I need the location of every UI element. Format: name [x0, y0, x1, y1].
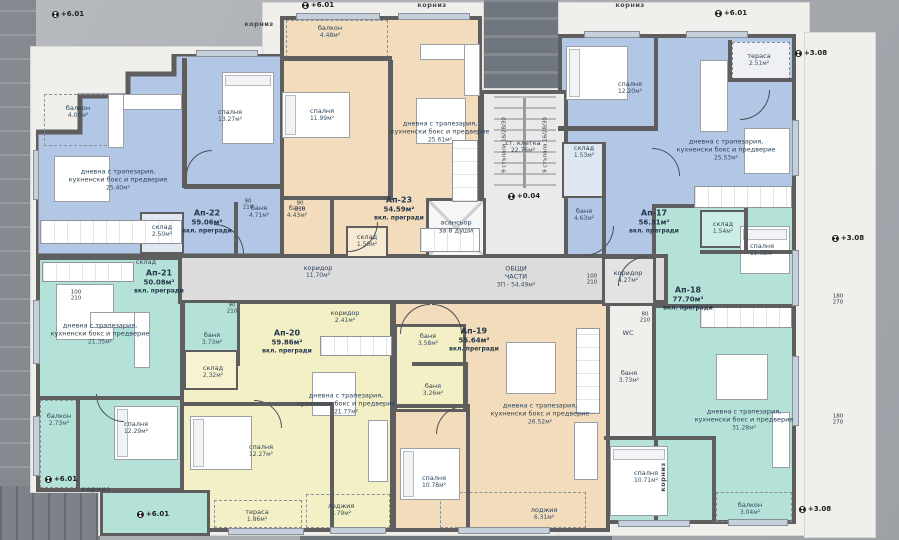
- stair-note: 9 стъпала 16/28/30: [502, 117, 509, 173]
- dining-table: [506, 342, 556, 394]
- elevation-value: +6.01: [54, 475, 77, 483]
- dining-table: [716, 354, 768, 400]
- elevation-marker: +6.01: [137, 510, 169, 518]
- wall: [558, 126, 658, 131]
- wall: [412, 362, 468, 366]
- door-dimension: 180270: [833, 294, 844, 307]
- door-dimension: 100210: [71, 290, 82, 303]
- wall: [464, 362, 468, 406]
- window: [196, 50, 258, 57]
- wall: [282, 56, 392, 61]
- window: [330, 527, 386, 534]
- window: [686, 31, 748, 38]
- dim-height: 210: [71, 296, 82, 302]
- cornice-label: корниз: [244, 20, 273, 28]
- wall: [744, 208, 748, 252]
- door-dimension: 90210: [295, 201, 306, 214]
- room-terrace-ap20: [214, 500, 302, 528]
- floor-plan-canvas: Ап-2259.06м²вкл. преградиАп-2354.59м²вкл…: [0, 0, 899, 540]
- window: [792, 250, 799, 306]
- door-dimension: 90210: [243, 199, 254, 212]
- dining-table: [744, 128, 790, 174]
- elevation-value: +6.01: [311, 1, 334, 9]
- dim-height: 210: [587, 280, 598, 286]
- wall: [728, 40, 732, 82]
- window: [296, 13, 380, 20]
- wall: [330, 200, 334, 256]
- stair-note: 9 стъпала 16/28/30: [543, 117, 550, 173]
- kitchen-counter: [694, 186, 792, 208]
- cornice-label: корниз: [615, 1, 644, 9]
- room-loggia-ap20: [306, 494, 390, 528]
- wall: [652, 304, 794, 308]
- wall: [330, 402, 334, 532]
- elevation-marker: +6.01: [52, 10, 84, 18]
- window: [398, 13, 470, 20]
- wall: [182, 58, 187, 188]
- room-loggia-ap19: [440, 492, 586, 528]
- bed: [222, 72, 274, 144]
- elevation-marker: +3.08: [799, 505, 831, 513]
- window: [728, 519, 788, 526]
- window: [228, 528, 304, 535]
- door-dimension: 90210: [227, 303, 238, 316]
- bed: [190, 416, 252, 470]
- dim-height: 270: [833, 420, 844, 426]
- level-mark-icon: [300, 0, 310, 10]
- bed: [400, 448, 460, 500]
- wall: [728, 78, 794, 82]
- level-mark-icon: [713, 8, 723, 18]
- wall: [234, 202, 238, 256]
- kitchen-counter: [40, 220, 182, 244]
- elevation-marker: +0.04: [508, 192, 540, 200]
- dining-table: [54, 156, 110, 202]
- elevation-value: +6.01: [724, 9, 747, 17]
- dim-height: 270: [833, 300, 844, 306]
- room-balcony-ap23: [286, 20, 388, 58]
- photo-building-bottomleft: [0, 486, 100, 540]
- level-mark-icon: [797, 504, 807, 514]
- window: [792, 120, 799, 176]
- window: [618, 520, 690, 527]
- level-mark-icon: [506, 191, 516, 201]
- room-terrace-ap17: [732, 42, 790, 80]
- zone-ap20-baths: [394, 324, 466, 412]
- dining-table: [416, 98, 466, 144]
- door-dimension: 100210: [587, 274, 598, 287]
- level-mark-icon: [793, 48, 803, 58]
- wall: [654, 38, 658, 128]
- kitchen-counter: [700, 306, 792, 328]
- sofa: [464, 44, 480, 96]
- level-mark-icon: [135, 509, 145, 519]
- room-storage-ap17: [562, 142, 606, 198]
- wall: [392, 404, 470, 408]
- wall: [180, 402, 334, 406]
- sofa: [700, 60, 728, 132]
- bed: [566, 46, 628, 100]
- sofa: [134, 312, 150, 368]
- kitchen-counter: [42, 262, 134, 282]
- elevation-marker: +6.01: [302, 1, 334, 9]
- window: [33, 416, 40, 476]
- elevation-marker: +3.08: [832, 234, 864, 242]
- window: [458, 527, 550, 534]
- cornice-label: корниз: [659, 462, 667, 491]
- sofa: [574, 422, 598, 480]
- wall: [602, 142, 606, 258]
- kitchen-counter: [320, 336, 392, 356]
- elevation-value: +6.01: [146, 510, 169, 518]
- elevation-value: +6.01: [61, 10, 84, 18]
- wall: [184, 184, 284, 189]
- wall: [36, 396, 184, 400]
- level-mark-icon: [830, 233, 840, 243]
- window: [33, 150, 39, 200]
- wall: [388, 60, 393, 200]
- dim-height: 210: [640, 318, 651, 324]
- dim-height: 210: [243, 205, 254, 211]
- door-dimension: 180270: [833, 414, 844, 427]
- elevation-value: +3.08: [804, 49, 827, 57]
- wall: [712, 436, 716, 524]
- cornice-label: корниз: [81, 485, 110, 493]
- elevation-value: +3.08: [841, 234, 864, 242]
- photo-building-gap: [484, 0, 558, 92]
- sofa: [368, 420, 388, 482]
- wardrobe: [772, 412, 790, 468]
- level-mark-icon: [50, 9, 60, 19]
- bed: [282, 92, 350, 138]
- kitchen-counter: [452, 140, 478, 202]
- elevation-value: +3.08: [808, 505, 831, 513]
- elevation-marker: +6.01: [45, 475, 77, 483]
- wall: [604, 436, 716, 440]
- plan-sheet-margin-right: [804, 32, 876, 538]
- cornice-label: корниз: [417, 1, 446, 9]
- dining-table: [312, 372, 356, 416]
- window: [792, 356, 799, 426]
- staircase-rail: [523, 98, 526, 188]
- wall: [282, 196, 390, 200]
- kitchen-counter: [420, 228, 480, 252]
- elevation-marker: +6.01: [715, 9, 747, 17]
- window: [584, 31, 640, 38]
- level-mark-icon: [43, 474, 53, 484]
- wall: [466, 404, 470, 532]
- room-balcony-ap18: [716, 492, 792, 522]
- door-dimension: 80210: [640, 312, 651, 325]
- sofa: [108, 94, 124, 148]
- elevation-value: +0.04: [517, 192, 540, 200]
- window: [33, 300, 40, 364]
- dim-height: 210: [295, 207, 306, 213]
- kitchen-counter: [576, 328, 600, 414]
- room-storage-ap20: [184, 350, 238, 390]
- elevation-marker: +3.08: [795, 49, 827, 57]
- dim-height: 210: [227, 309, 238, 315]
